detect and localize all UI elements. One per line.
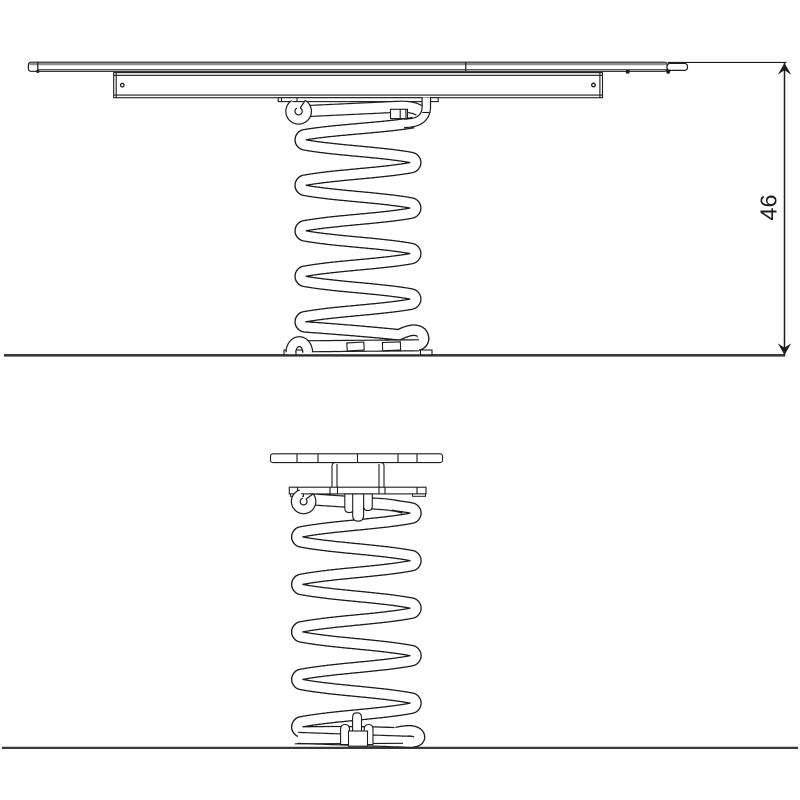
svg-text:46: 46 xyxy=(756,194,782,220)
